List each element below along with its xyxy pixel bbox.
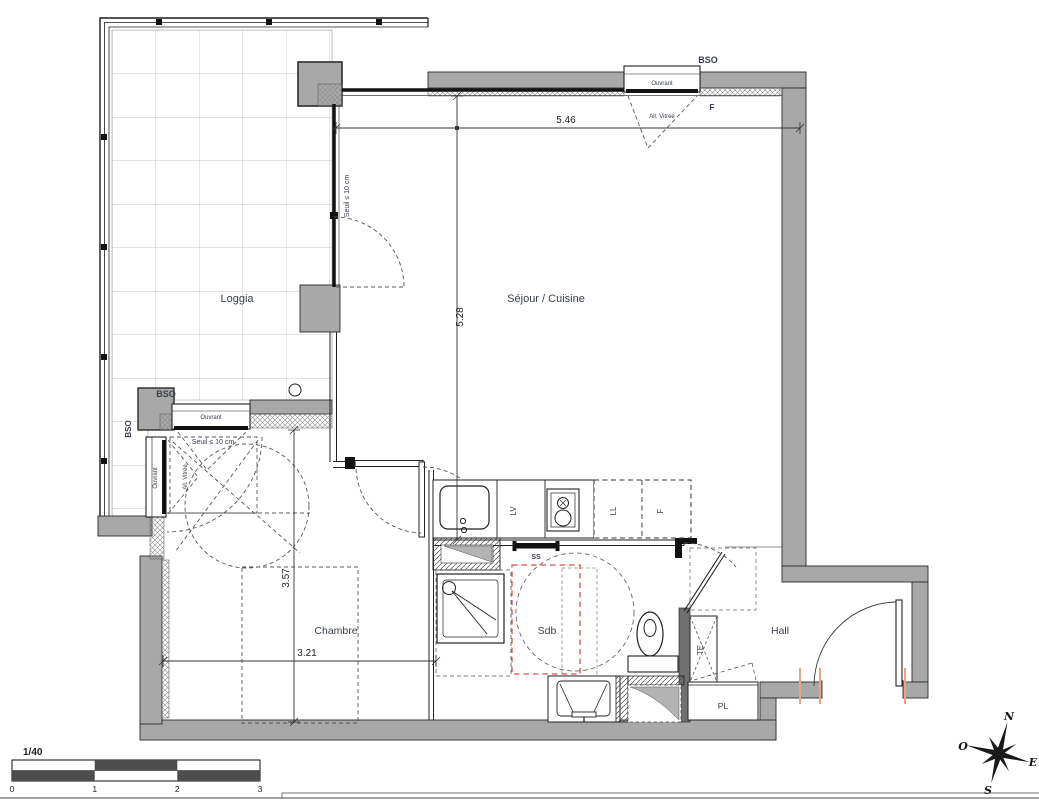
scale-ratio: 1/40 bbox=[23, 747, 43, 758]
seuil-label-chambre: Seuil ≤ 10 cm bbox=[192, 439, 235, 446]
floorplan-sheet: Loggia Séjour / Cuisine Chambre Sdb Hall… bbox=[0, 0, 1039, 800]
compass-south: S bbox=[984, 784, 992, 797]
scale-tick-3: 3 bbox=[258, 784, 263, 794]
cooktop bbox=[547, 489, 579, 531]
room-label-loggia: Loggia bbox=[220, 293, 254, 305]
bso-label-top: BSO bbox=[698, 55, 718, 65]
dimension-chambre-width: 3.21 bbox=[297, 648, 317, 659]
ouvrant-label-loggia: Ouvrant bbox=[200, 415, 222, 421]
kitchen-counter bbox=[433, 480, 691, 538]
kitchen-label-lv: LV bbox=[509, 506, 518, 516]
seuil-label-bay: Seuil ≤ 10 cm bbox=[344, 175, 351, 218]
all-vitree-label-top: All. Vitrée bbox=[649, 114, 675, 120]
room-label-te: TE bbox=[696, 645, 705, 655]
label-ss: SS bbox=[531, 554, 541, 561]
bso-label-left: BSO bbox=[124, 420, 133, 437]
scale-tick-2: 2 bbox=[175, 784, 180, 794]
room-label-hall: Hall bbox=[771, 625, 789, 637]
dimension-sejour-depth: 5.28 bbox=[455, 307, 466, 327]
ouvrant-label-top: Ouvrant bbox=[651, 81, 673, 87]
washbasin bbox=[548, 676, 620, 722]
scale-tick-0: 0 bbox=[10, 784, 15, 794]
dimension-chambre-depth: 3.57 bbox=[281, 568, 292, 588]
room-label-sdb: Sdb bbox=[538, 625, 557, 637]
floorplan-canvas: Loggia Séjour / Cuisine Chambre Sdb Hall… bbox=[0, 0, 1039, 800]
window-top-bso bbox=[624, 66, 700, 93]
room-label-pl: PL bbox=[718, 701, 729, 711]
all-vitree-label-left: All. Vitrée bbox=[183, 464, 189, 490]
window-type-label-f: F bbox=[709, 102, 714, 112]
kitchen-label-f: F bbox=[656, 508, 665, 513]
room-label-sejour: Séjour / Cuisine bbox=[507, 293, 585, 305]
room-label-chambre: Chambre bbox=[314, 625, 357, 637]
compass-north: N bbox=[1003, 710, 1015, 723]
sink-base-hatch bbox=[433, 538, 500, 570]
sdb-corner-hatch bbox=[616, 676, 684, 722]
compass-west: O bbox=[958, 740, 968, 753]
scale-tick-1: 1 bbox=[92, 784, 97, 794]
ouvrant-label-left: Ouvrant bbox=[153, 467, 159, 489]
kitchen-label-ll: LL bbox=[609, 506, 618, 515]
dimension-sejour-width: 5.46 bbox=[556, 115, 576, 126]
compass-east: E bbox=[1028, 756, 1038, 769]
bso-label-loggia: BSO bbox=[156, 389, 176, 399]
